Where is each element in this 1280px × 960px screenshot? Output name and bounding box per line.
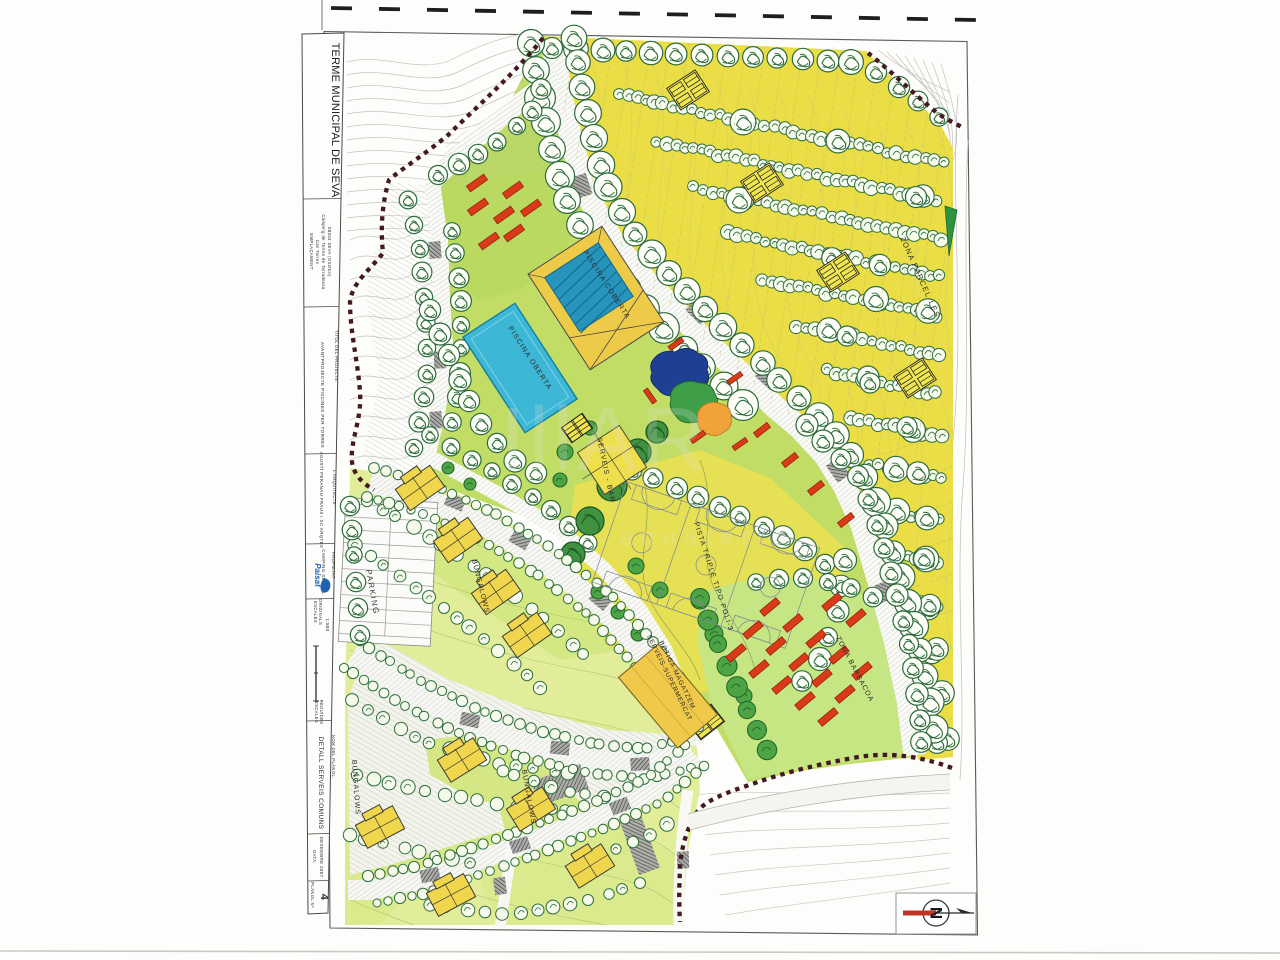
svg-text:08553 SEVA (OSONA): 08553 SEVA (OSONA) xyxy=(327,227,332,277)
svg-text:Càmping de Terres de Tarradess: Càmping de Terres de Tarradessa xyxy=(321,214,326,290)
svg-text:PROPIETAT: PROPIETAT xyxy=(331,552,336,579)
svg-text:TITOL DEL PROJECTE:: TITOL DEL PROJECTE: xyxy=(334,330,339,383)
svg-text:AVANTPROJECTE PISCINES PER TOR: AVANTPROJECTE PISCINES PER TORRES xyxy=(320,342,325,448)
svg-text:PLÀNOL Nº: PLÀNOL Nº xyxy=(310,882,315,908)
svg-text:DETALL SERVEIS COMUNS: DETALL SERVEIS COMUNS xyxy=(317,737,324,830)
svg-text:ESCALES: ESCALES xyxy=(314,701,319,723)
svg-text:NOM DEL PLÀNOL:: NOM DEL PLÀNOL: xyxy=(331,735,336,779)
svg-text:N: N xyxy=(927,907,946,919)
svg-text:ORIGINALS: ORIGINALS xyxy=(318,599,323,625)
svg-text:DATA:: DATA: xyxy=(312,850,317,864)
svg-text:TERME MUNICIPAL DE SEVA: TERME MUNICIPAL DE SEVA xyxy=(329,43,341,198)
svg-text:aquaterra: aquaterra xyxy=(620,524,795,551)
svg-text:IllAR: IllAR xyxy=(500,390,710,490)
svg-text:Paisat: Paisat xyxy=(313,563,322,587)
svg-text:Can Torres: Can Torres xyxy=(315,240,320,264)
svg-text:DESEMBRE 2007: DESEMBRE 2007 xyxy=(319,837,324,878)
svg-text:REDUÏDES: REDUÏDES xyxy=(319,700,324,725)
svg-text:AGUSTÍ PERANAU FRAUS I SC ARQT: AGUSTÍ PERANAU FRAUS I SC ARQTES xyxy=(319,452,324,548)
svg-text:ESCALES: ESCALES xyxy=(313,601,318,623)
svg-text:1:500: 1:500 xyxy=(325,619,330,632)
svg-text:L'ARQUITECTE: L'ARQUITECTE xyxy=(332,470,337,505)
svg-text:4: 4 xyxy=(318,894,330,901)
svg-text:EMPLAÇAMENT:: EMPLAÇAMENT: xyxy=(309,233,314,270)
